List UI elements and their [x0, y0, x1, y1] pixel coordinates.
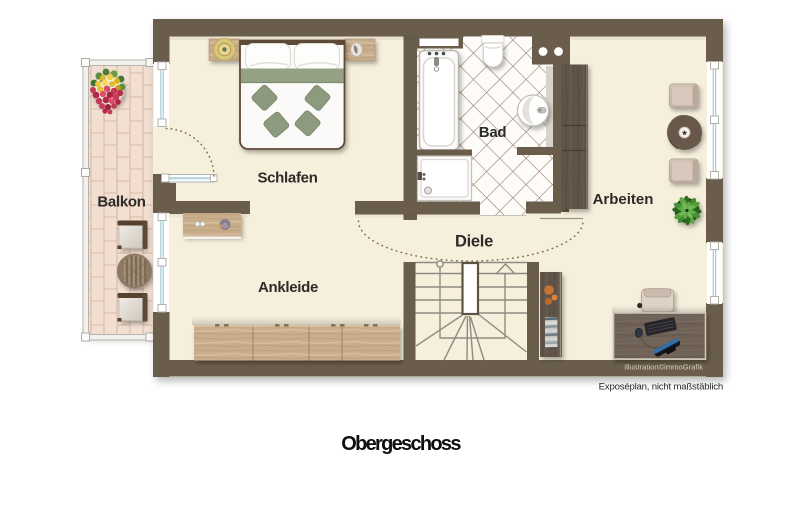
svg-text:Bad: Bad — [479, 124, 507, 141]
svg-text:Ankleide: Ankleide — [258, 279, 318, 296]
svg-text:Exposéplan, nicht maßstäblich: Exposéplan, nicht maßstäblich — [599, 382, 723, 393]
svg-text:Schlafen: Schlafen — [257, 170, 317, 187]
svg-text:Obergeschoss: Obergeschoss — [341, 433, 461, 455]
svg-text:Arbeiten: Arbeiten — [593, 191, 654, 208]
svg-text:illustration©immoGrafik: illustration©immoGrafik — [624, 363, 703, 372]
svg-text:Diele: Diele — [455, 233, 493, 251]
svg-text:Balkon: Balkon — [97, 194, 145, 211]
